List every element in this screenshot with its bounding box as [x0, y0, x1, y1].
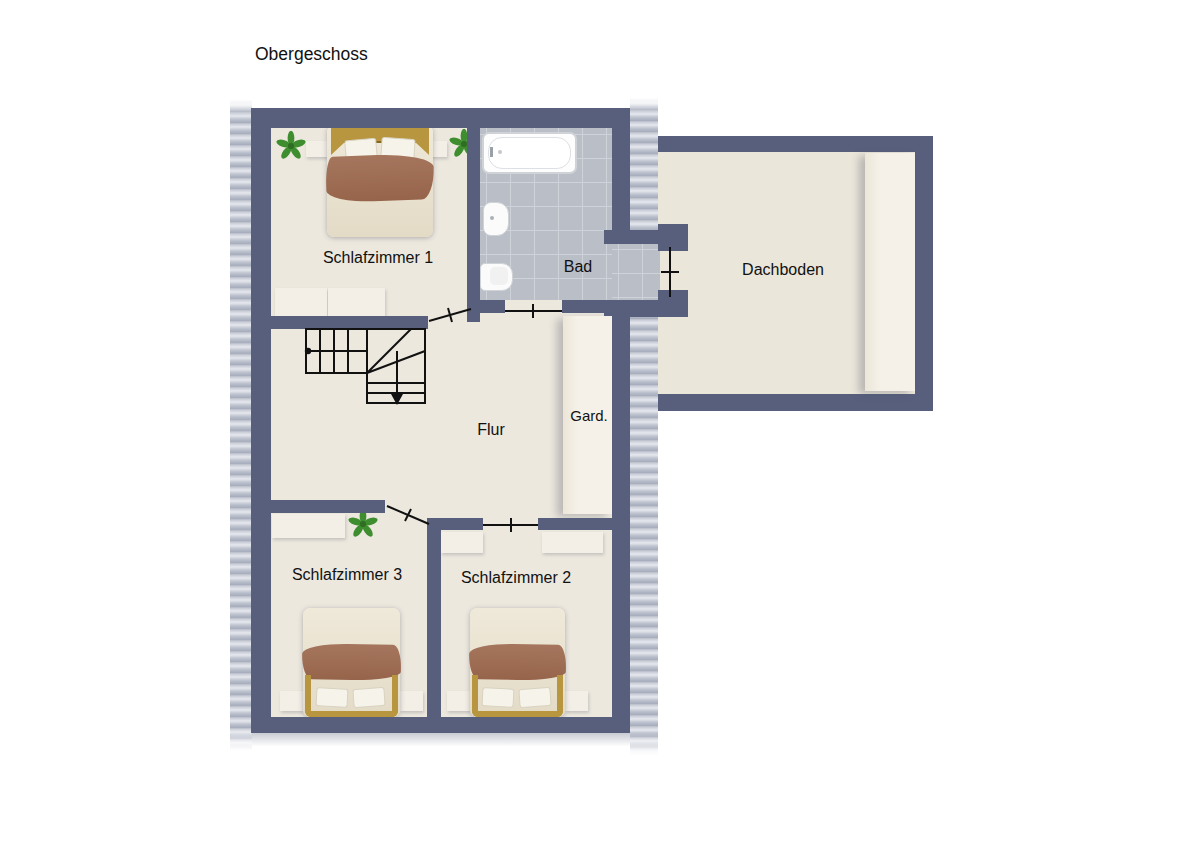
room-label-schlafzimmer1: Schlafzimmer 1	[323, 249, 433, 267]
wardrobe-sz3	[272, 514, 345, 538]
room-label-bad: Bad	[564, 258, 592, 276]
wall-bad-flur-left	[467, 300, 505, 313]
wall-passage-bottom	[604, 300, 660, 317]
nightstand-sz2-left	[447, 691, 470, 711]
double-bed-schlafzimmer3	[303, 608, 400, 717]
roof-overhang-left	[230, 100, 252, 750]
pillow	[518, 687, 551, 708]
nightstand-sz2-right	[565, 691, 588, 711]
toilet	[480, 263, 513, 291]
building-shadow	[252, 733, 630, 748]
wall-dachboden-bottom	[628, 394, 933, 411]
bed-blanket	[325, 153, 435, 203]
wall-sz3-sz2	[427, 518, 441, 717]
pillow	[352, 687, 385, 708]
room-label-schlafzimmer3: Schlafzimmer 3	[292, 566, 402, 584]
dresser-sz1-right	[328, 288, 385, 316]
room-label-garderobe: Gard.	[570, 407, 608, 424]
bathtub-faucet	[490, 147, 493, 157]
nightstand-sz3-right	[400, 691, 423, 711]
door-jamb-bottom	[658, 290, 688, 317]
toilet-seat	[490, 267, 508, 285]
wardrobe-sz2-left	[441, 532, 483, 553]
bathtub-drain	[498, 150, 502, 154]
wall-outer-right-upper	[612, 108, 630, 230]
wall-sz2-flur-left	[441, 518, 483, 530]
wall-sz3-flur	[251, 500, 385, 513]
wall-bad-flur-right	[562, 300, 612, 313]
passage-floor	[612, 243, 660, 300]
pillow	[482, 687, 515, 708]
double-bed-schlafzimmer2	[470, 608, 565, 717]
wardrobe-dachboden	[865, 153, 915, 391]
pillow	[316, 687, 349, 708]
nightstand-sz3-left	[280, 691, 303, 711]
sink-drain	[490, 216, 494, 220]
room-label-flur: Flur	[477, 421, 505, 439]
wall-outer-left	[251, 108, 271, 733]
bathtub	[482, 132, 577, 174]
room-label-schlafzimmer2: Schlafzimmer 2	[461, 569, 571, 587]
nightstand-sz1-left	[306, 141, 327, 157]
dresser-sz1-left	[275, 288, 327, 316]
wall-outer-top	[251, 108, 630, 128]
wall-outer-bottom	[251, 717, 630, 733]
wall-dachboden-top	[628, 136, 933, 152]
wardrobe-sz2-right	[542, 532, 603, 553]
wall-passage-top	[604, 230, 660, 244]
bed-headboard-wing	[414, 141, 429, 155]
wall-sz2-flur-right	[538, 518, 612, 530]
wall-sz1-flur	[251, 316, 428, 329]
room-label-dachboden: Dachboden	[742, 261, 824, 279]
door-jamb-top	[658, 224, 688, 251]
floor-plan: Obergeschoss	[0, 0, 1200, 848]
sink-basin	[483, 202, 509, 236]
wall-sz1-bad	[467, 128, 480, 322]
roof-overhang-right	[630, 98, 658, 755]
page-title: Obergeschoss	[255, 44, 368, 65]
wall-dachboden-right	[915, 136, 933, 410]
double-bed-schlafzimmer1	[327, 125, 433, 237]
wall-outer-right-lower	[612, 317, 630, 733]
